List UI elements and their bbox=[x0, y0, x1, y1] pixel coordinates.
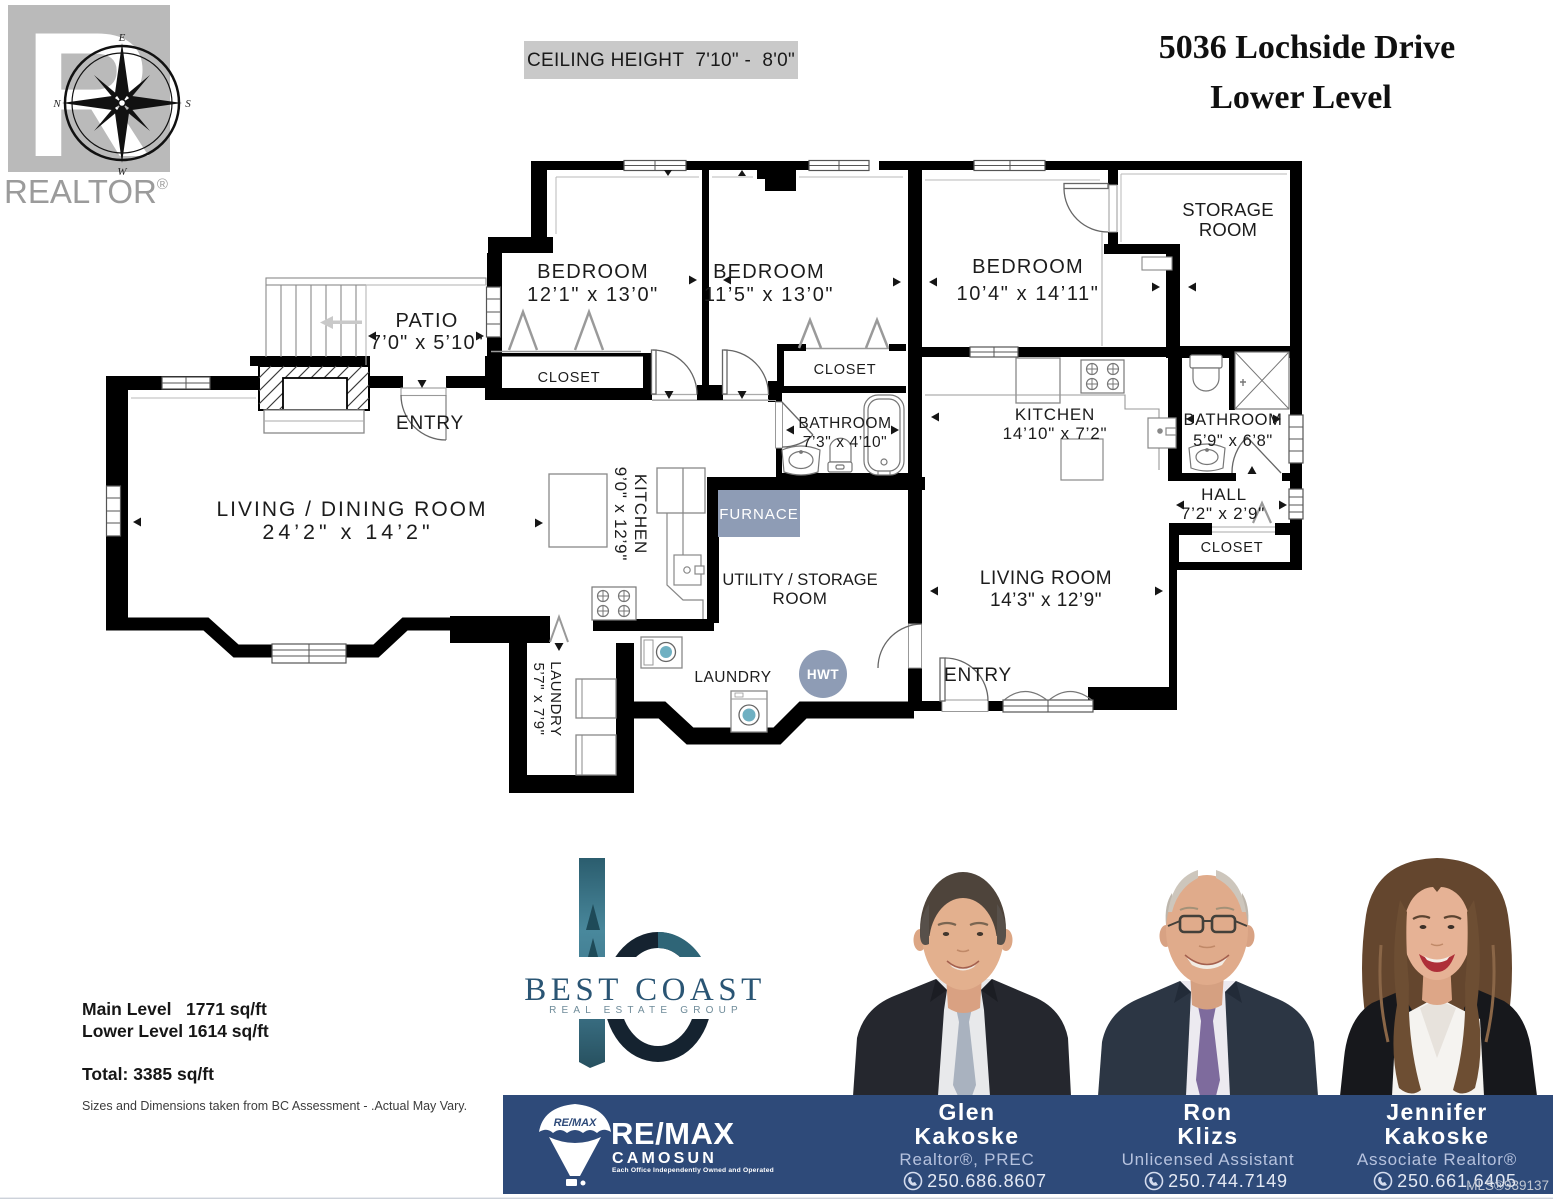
svg-text:14’3" x 12’9": 14’3" x 12’9" bbox=[990, 590, 1102, 611]
svg-text:Each Office Independently Owne: Each Office Independently Owned and Oper… bbox=[612, 1167, 774, 1174]
svg-text:9’0" x 12’9": 9’0" x 12’9" bbox=[611, 467, 630, 561]
svg-text:BEDROOM: BEDROOM bbox=[537, 261, 649, 283]
svg-text:RE/MAX: RE/MAX bbox=[611, 1116, 735, 1151]
svg-text:Lower Level: Lower Level bbox=[1210, 79, 1392, 116]
svg-text:KITCHEN: KITCHEN bbox=[1015, 405, 1095, 424]
svg-text:BEDROOM: BEDROOM bbox=[972, 256, 1084, 278]
svg-text:Lower Level 1614 sq/ft: Lower Level 1614 sq/ft bbox=[82, 1021, 269, 1041]
svg-text:5’7" x 7’9": 5’7" x 7’9" bbox=[530, 662, 547, 735]
svg-text:Sizes and Dimensions taken fro: Sizes and Dimensions taken from BC Asses… bbox=[82, 1099, 467, 1113]
svg-text:Unlicensed Assistant: Unlicensed Assistant bbox=[1122, 1150, 1295, 1169]
svg-text:KITCHEN: KITCHEN bbox=[631, 474, 650, 554]
svg-text:REAL ESTATE GROUP: REAL ESTATE GROUP bbox=[549, 1005, 743, 1016]
svg-text:BEST COAST: BEST COAST bbox=[524, 972, 766, 1008]
svg-text:ROOM: ROOM bbox=[773, 589, 828, 608]
svg-text:BATHROOM: BATHROOM bbox=[798, 415, 891, 432]
svg-text:W: W bbox=[117, 166, 127, 178]
svg-text:FURNACE: FURNACE bbox=[719, 506, 799, 523]
svg-text:7’2" x 2’9": 7’2" x 2’9" bbox=[1181, 504, 1265, 523]
svg-text:5’9" x 6’8": 5’9" x 6’8" bbox=[1193, 432, 1273, 450]
svg-text:N: N bbox=[52, 98, 61, 110]
svg-text:BATHROOM: BATHROOM bbox=[1184, 411, 1283, 429]
svg-text:LIVING ROOM: LIVING ROOM bbox=[980, 568, 1112, 589]
svg-text:11’5" x 13’0": 11’5" x 13’0" bbox=[704, 284, 834, 306]
svg-text:Jennifer: Jennifer bbox=[1386, 1099, 1487, 1125]
svg-text:HALL: HALL bbox=[1201, 485, 1247, 504]
svg-text:HWT: HWT bbox=[807, 667, 839, 682]
svg-text:5036 Lochside Drive: 5036 Lochside Drive bbox=[1159, 29, 1456, 66]
svg-text:ENTRY: ENTRY bbox=[944, 665, 1012, 686]
svg-text:Realtor®, PREC: Realtor®, PREC bbox=[899, 1150, 1034, 1169]
svg-text:LAUNDRY: LAUNDRY bbox=[547, 661, 564, 737]
svg-text:12’1" x 13’0": 12’1" x 13’0" bbox=[527, 284, 659, 306]
svg-text:LIVING / DINING ROOM: LIVING / DINING ROOM bbox=[216, 498, 487, 521]
svg-text:BEDROOM: BEDROOM bbox=[713, 261, 825, 283]
svg-text:LAUNDRY: LAUNDRY bbox=[694, 669, 771, 686]
svg-text:CLOSET: CLOSET bbox=[538, 370, 601, 386]
svg-text:Total: 3385 sq/ft: Total: 3385 sq/ft bbox=[82, 1064, 214, 1084]
svg-text:Kakoske: Kakoske bbox=[914, 1123, 1019, 1149]
svg-text:24’2" x 14’2": 24’2" x 14’2" bbox=[262, 520, 433, 544]
svg-text:PATIO: PATIO bbox=[395, 310, 458, 332]
svg-text:ROOM: ROOM bbox=[1199, 219, 1257, 240]
svg-text:250.744.7149: 250.744.7149 bbox=[1168, 1171, 1288, 1191]
svg-text:UTILITY / STORAGE: UTILITY / STORAGE bbox=[722, 571, 877, 589]
svg-text:Ron: Ron bbox=[1183, 1099, 1232, 1125]
svg-text:Associate Realtor®: Associate Realtor® bbox=[1357, 1150, 1517, 1169]
svg-text:Kakoske: Kakoske bbox=[1384, 1123, 1489, 1149]
svg-text:CLOSET: CLOSET bbox=[814, 362, 877, 378]
svg-text:CAMOSUN: CAMOSUN bbox=[612, 1150, 717, 1167]
svg-text:CEILING HEIGHT 7'10" - 8'0": CEILING HEIGHT 7'10" - 8'0" bbox=[527, 50, 795, 71]
svg-text:STORAGE: STORAGE bbox=[1182, 199, 1274, 220]
svg-text:Main Level 1771 sq/ft: Main Level 1771 sq/ft bbox=[82, 999, 267, 1019]
svg-text:CLOSET: CLOSET bbox=[1201, 540, 1264, 556]
svg-text:Glen: Glen bbox=[938, 1099, 995, 1125]
svg-text:14’10" x 7’2": 14’10" x 7’2" bbox=[1003, 424, 1108, 443]
svg-text:E: E bbox=[118, 32, 126, 44]
svg-text:7’0" x 5’10": 7’0" x 5’10" bbox=[370, 332, 484, 354]
svg-text:MLS®939137: MLS®939137 bbox=[1466, 1178, 1549, 1193]
svg-text:7’3" x 4’10": 7’3" x 4’10" bbox=[803, 434, 888, 451]
svg-text:250.686.8607: 250.686.8607 bbox=[927, 1171, 1047, 1191]
svg-text:Klizs: Klizs bbox=[1177, 1123, 1238, 1149]
svg-text:10’4" x 14’11": 10’4" x 14’11" bbox=[957, 283, 1100, 305]
svg-text:RE/MAX: RE/MAX bbox=[554, 1117, 597, 1129]
svg-text:REALTOR®: REALTOR® bbox=[4, 173, 168, 210]
svg-text:S: S bbox=[185, 98, 191, 110]
svg-text:ENTRY: ENTRY bbox=[396, 413, 464, 434]
